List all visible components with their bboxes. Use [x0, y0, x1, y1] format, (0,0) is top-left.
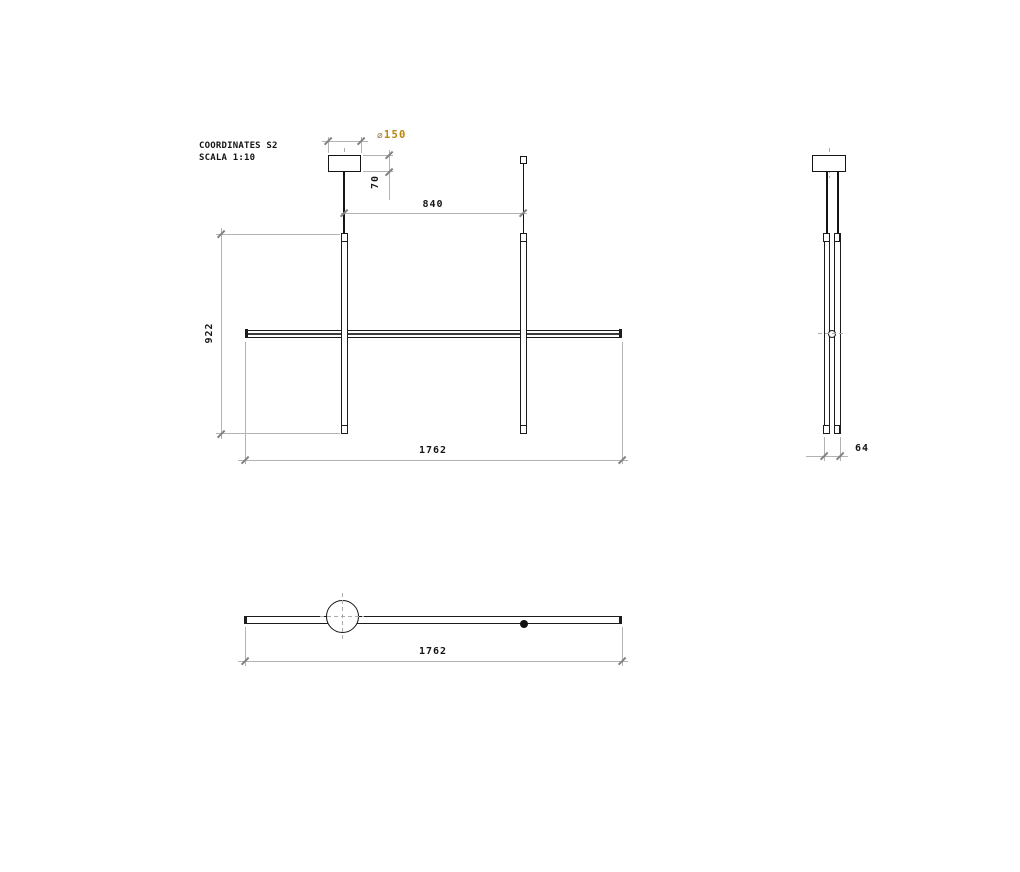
canopy-crosshair-horizontal: [320, 616, 364, 617]
suspension-point-dot: [520, 620, 528, 628]
canopy-crosshair-vertical: [342, 593, 343, 641]
bar-endcap-left: [244, 616, 247, 624]
dim-text-overall-width-top: 1762: [408, 646, 458, 658]
bar-endcap-right: [619, 616, 622, 624]
top-view: 1762: [0, 0, 1020, 872]
drawing-canvas: COORDINATES S2SCALA 1:10 ⌀150: [0, 0, 1020, 872]
dim-line-overall-width-top: [238, 661, 628, 662]
top-view-bar: [244, 616, 622, 624]
